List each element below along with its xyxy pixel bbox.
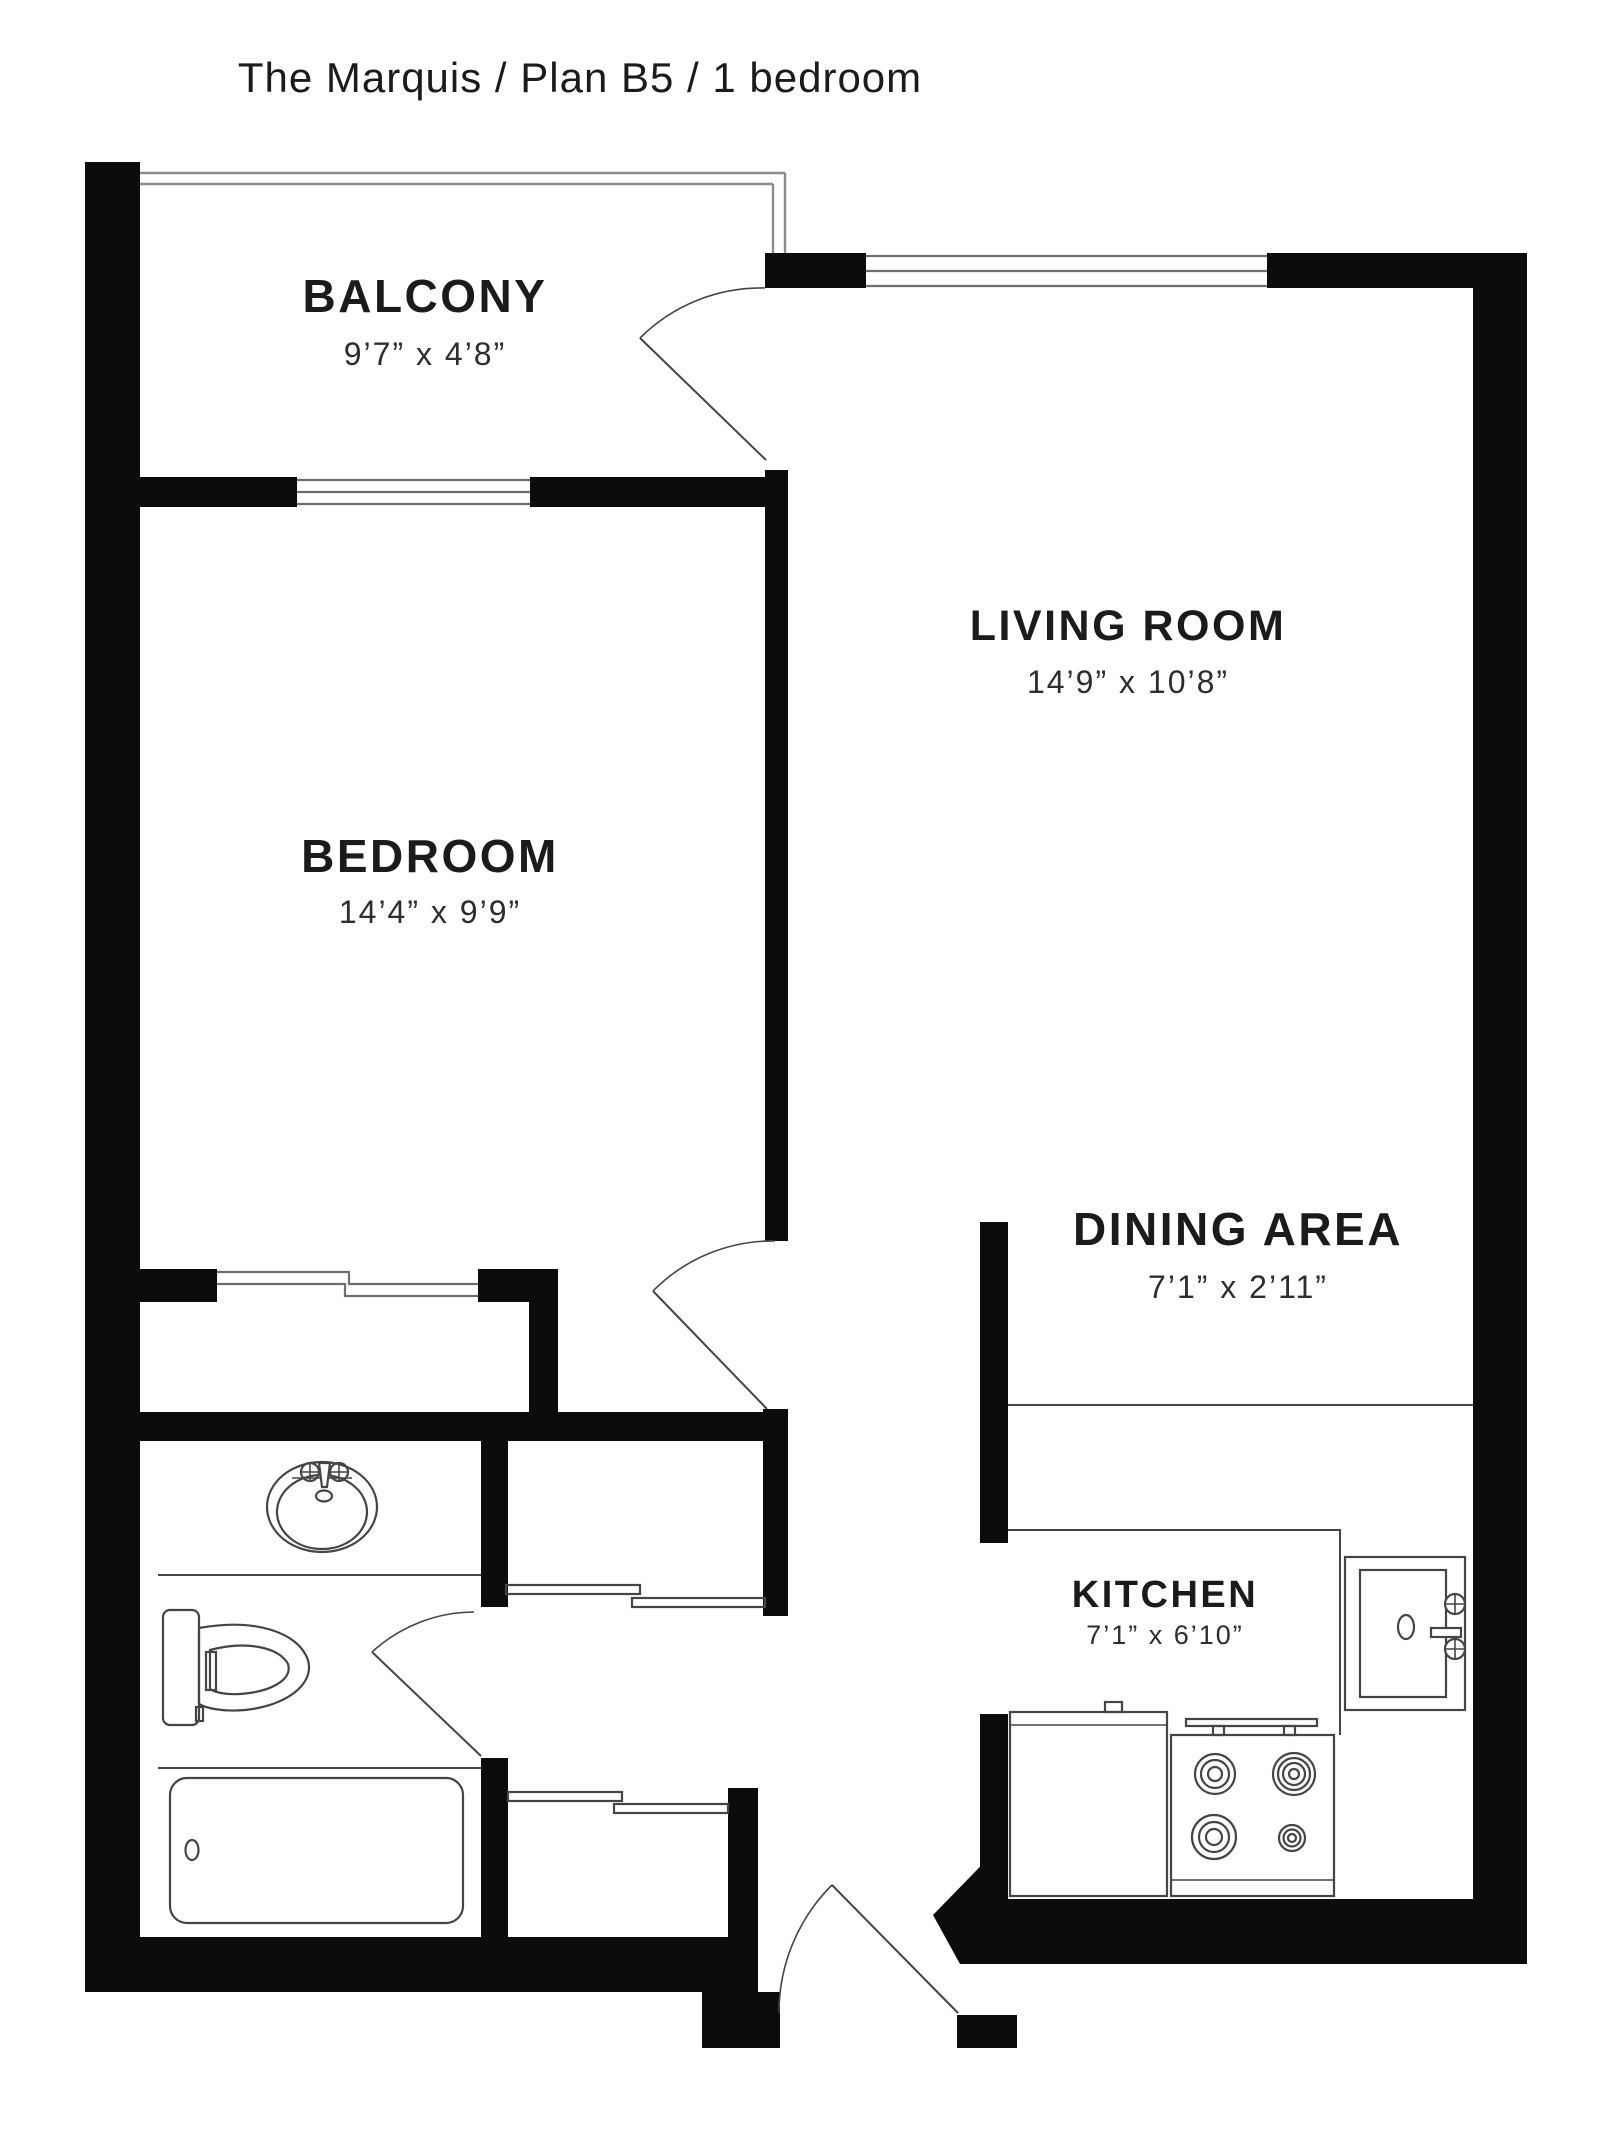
burner-top-left [1195,1754,1235,1794]
living-room-window [866,256,1267,286]
balcony-railing [140,173,785,253]
wall-left-outer [85,162,140,1992]
bedroom-door [653,1241,775,1409]
bedroom-south-window [217,1272,478,1296]
living-room-dims: 14’9” x 10’8” [1027,664,1229,700]
bathroom-sink-icon [267,1462,377,1552]
kitchen-sink-icon [1345,1557,1465,1710]
doors [372,288,958,2013]
bathroom-door-leaf [372,1652,481,1756]
labels: The Marquis / Plan B5 / 1 bedroom BALCON… [238,54,1403,1650]
closet1-sliding-doors [506,1585,765,1607]
living-room-label: LIVING ROOM [970,602,1287,650]
bedroom-balcony-window [297,480,530,504]
wall-bedroom-bottom-left [140,1269,217,1302]
wall-closet1-left [529,1302,558,1426]
wall-bedroom-living-divider [765,470,788,1241]
kitchen-label: KITCHEN [1072,1574,1258,1616]
wall-kitchen-divider-upper [980,1222,1008,1543]
refrigerator-icon [1010,1702,1167,1896]
wall-door-hinge-column [763,1409,788,1616]
wall-right-outer [1473,253,1527,1964]
interior-lines [158,1405,1473,1768]
dining-area-label: DINING AREA [1073,1203,1403,1255]
wall-entry-door-block [957,2015,1017,2048]
kitchen-dims: 7’1” x 6’10” [1086,1620,1244,1650]
balcony-dims: 9’7” x 4’8” [344,336,507,372]
toilet-icon [163,1610,309,1725]
floor-plan-page: The Marquis / Plan B5 / 1 bedroom BALCON… [0,0,1604,2140]
wall-bathroom-top [140,1412,765,1441]
entry-door [779,1885,958,2013]
bedroom-dims: 14’4” x 9’9” [339,894,521,930]
wall-entry-step [702,1992,780,2048]
wall-bedroom-top-left [140,477,297,507]
burner-top-right [1273,1753,1315,1795]
dining-area-dims: 7’1” x 2’11” [1148,1269,1328,1305]
windows [217,256,1267,1296]
closet2-sliding-doors [508,1792,728,1813]
wall-kitchen-bottom [1008,1899,1527,1964]
balcony-label: BALCONY [303,270,548,322]
wall-bathroom-right-upper [481,1441,508,1607]
bathroom-door-swing-arc [372,1612,474,1652]
range-hood-icon [1186,1719,1317,1735]
burner-bottom-right [1279,1825,1305,1851]
wall-entry-diagonal [933,1838,1008,1964]
entry-door-swing-arc [779,1885,832,2013]
bathroom-door [372,1612,481,1756]
walls [85,162,1527,2048]
balcony-door-leaf [640,338,766,460]
bedroom-door-swing-arc [653,1241,775,1291]
page-title: The Marquis / Plan B5 / 1 bedroom [238,54,922,101]
burner-bottom-left [1192,1815,1236,1859]
wall-bathroom-bottom [140,1937,758,1992]
wall-bedroom-top-right [530,477,788,507]
floor-plan-drawing: The Marquis / Plan B5 / 1 bedroom BALCON… [0,0,1604,2140]
wall-balcony-door-header [765,253,866,288]
balcony-door [640,288,766,460]
bedroom-label: BEDROOM [301,830,559,882]
bathtub-icon [170,1778,463,1923]
wall-bedroom-bottom-right [478,1269,558,1302]
wall-bathroom-right-lower [481,1758,508,1937]
stove-icon [1171,1735,1334,1896]
bedroom-door-leaf [653,1291,767,1409]
balcony-door-swing-arc [640,288,765,338]
entry-door-leaf [832,1885,958,2013]
